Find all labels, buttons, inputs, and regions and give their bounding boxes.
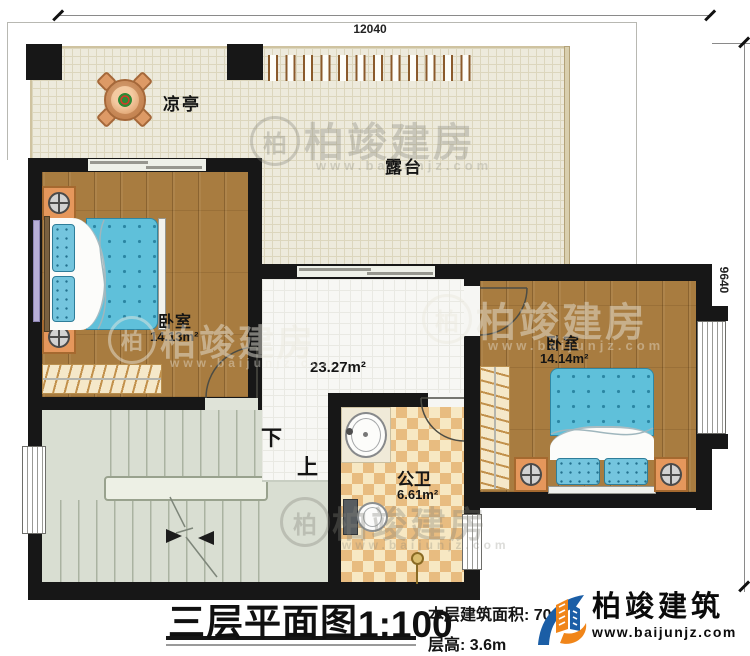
watermark: 柏竣建房 www.baijunjz.com — [332, 496, 572, 558]
watermark-seal-char: 柏 — [293, 505, 317, 540]
nightstand — [42, 186, 76, 220]
watermark-url: www.baijunjz.com — [316, 158, 492, 173]
bedroom-right-top-wall — [464, 264, 712, 281]
terrace-edge-wall — [564, 46, 570, 266]
door-opening — [428, 393, 464, 407]
bed-pillow — [52, 276, 75, 322]
logo-icon — [534, 589, 588, 651]
logo-website: www.baijunjz.com — [592, 625, 737, 640]
watermark-seal-char: 柏 — [263, 124, 287, 159]
lamp-icon — [520, 463, 542, 486]
terrace-column — [26, 44, 62, 80]
watermark-seal: 柏 — [108, 316, 156, 364]
watermark-seal: 柏 — [250, 116, 300, 166]
bathroom-top-wall — [328, 393, 428, 407]
bed-footboard — [548, 486, 656, 494]
dimension-label-top: 12040 — [330, 22, 410, 36]
sliding-door-leaf — [146, 166, 202, 169]
stairs-railing — [104, 476, 268, 501]
wardrobe — [480, 366, 510, 490]
bed-blanket — [550, 426, 654, 460]
sliding-door — [297, 266, 435, 277]
watermark: 柏竣建房 www.baijunjz.com — [160, 314, 400, 376]
bed-pillow — [556, 458, 600, 485]
wardrobe — [42, 364, 162, 394]
sink-drain — [363, 432, 368, 437]
sliding-door-leaf — [367, 272, 433, 275]
floor-drain-stem — [416, 564, 418, 584]
bay-window-cap — [696, 434, 728, 449]
stairs-treads-lower — [60, 500, 270, 582]
plant-icon — [118, 93, 132, 107]
floor-plan: 12040 9640 凉亭 露台 卧室 14.13m² — [0, 0, 750, 656]
sliding-door-leaf — [90, 161, 148, 164]
bed-pillow — [52, 224, 75, 272]
stairs-treads-upper — [110, 410, 270, 476]
stairs-window — [22, 446, 46, 534]
nightstand — [514, 457, 548, 492]
stairs-down-label: 下 — [261, 427, 282, 450]
dimension-line-top — [57, 15, 712, 16]
page-title: 三层平面图 — [168, 592, 358, 646]
sliding-door — [88, 159, 206, 171]
terrace-column — [227, 44, 263, 80]
logo-name: 柏竣建筑 — [592, 592, 724, 624]
nightstand — [654, 457, 688, 492]
bed-pillow — [604, 458, 648, 485]
eave-line-left — [7, 22, 8, 160]
watermark-seal-char: 柏 — [121, 324, 143, 356]
terrace-railing — [268, 55, 474, 81]
title-row: 三层平面图 1:100 — [168, 592, 453, 646]
eave-line-top — [7, 22, 636, 23]
eave-line-right — [636, 22, 637, 266]
stairs-threshold — [262, 480, 328, 482]
watermark-seal-char: 柏 — [435, 302, 459, 337]
lamp-icon — [48, 192, 70, 214]
dimension-line-right — [744, 43, 745, 592]
lamp-icon — [660, 463, 682, 486]
watermark-url: www.baijunjz.com — [342, 538, 510, 552]
watermark: 柏竣建房 www.baijunjz.com — [476, 290, 736, 360]
watermark-seal: 柏 — [422, 294, 472, 344]
pavilion-label: 凉亭 — [163, 96, 201, 115]
watermark-url: www.baijunjz.com — [488, 338, 664, 353]
faucet-icon — [346, 428, 353, 435]
door-opening — [205, 398, 258, 410]
sliding-door-leaf — [299, 268, 371, 271]
bedroom-left-window — [33, 220, 40, 322]
watermark: 柏竣建房 www.baijunjz.com — [304, 110, 564, 180]
floor-height-text: 层高: 3.6m — [428, 631, 506, 655]
watermark-url: www.baijunjz.com — [170, 356, 338, 370]
stairs-up-label: 上 — [297, 456, 318, 479]
watermark-seal: 柏 — [280, 497, 330, 547]
